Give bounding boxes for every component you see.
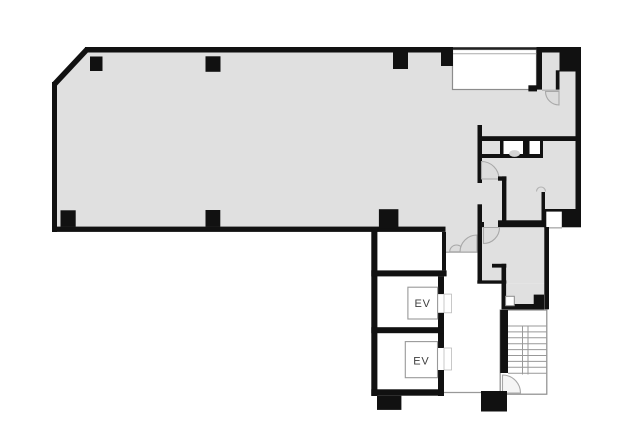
- svg-text:EV: EV: [413, 356, 429, 368]
- svg-text:EV: EV: [415, 298, 431, 310]
